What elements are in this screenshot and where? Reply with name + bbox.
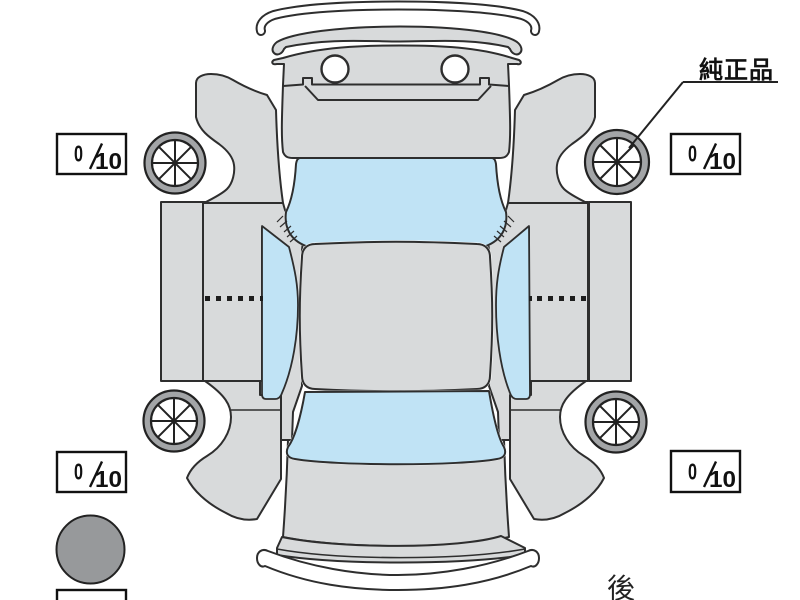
svg-text:0: 0 [688, 459, 697, 485]
svg-text:後: 後 [607, 573, 635, 600]
svg-text:10: 10 [709, 466, 736, 492]
svg-text:0: 0 [688, 141, 697, 167]
svg-text:10: 10 [709, 148, 736, 174]
svg-text:純正品: 純正品 [699, 56, 774, 84]
svg-text:0: 0 [74, 141, 83, 167]
svg-text:0: 0 [74, 459, 83, 485]
svg-text:10: 10 [95, 466, 122, 492]
svg-text:10: 10 [95, 148, 122, 174]
